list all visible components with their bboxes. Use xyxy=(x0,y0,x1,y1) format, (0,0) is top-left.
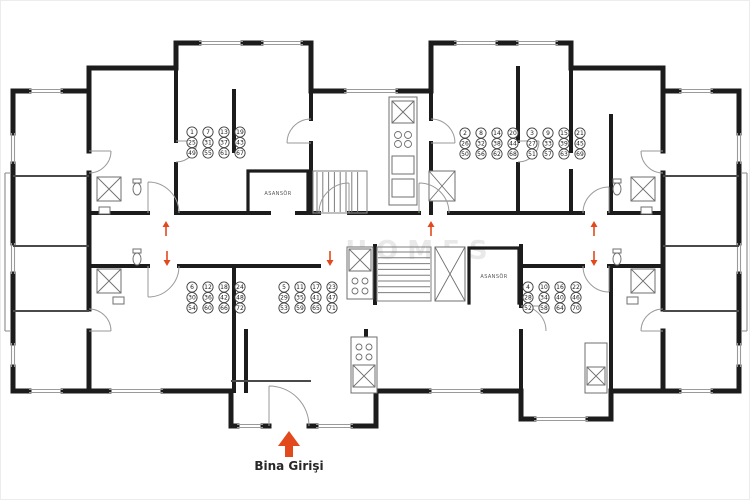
apartment-number: 8 xyxy=(479,130,483,137)
apartment-number: 30 xyxy=(188,295,196,302)
floor-plan-image: HOMES xyxy=(0,0,750,500)
staircase-1 xyxy=(313,171,367,213)
elevator-2-label: ASANSÖR xyxy=(480,273,507,280)
apartment-number: 55 xyxy=(204,150,212,157)
apartment-number: 27 xyxy=(528,141,536,148)
apartment-number: 7 xyxy=(206,129,210,136)
apartment-number: 10 xyxy=(540,284,548,291)
apartment-number: 9 xyxy=(546,130,550,137)
apartment-number: 61 xyxy=(220,150,228,157)
direction-arrow-up xyxy=(163,221,170,236)
apartment-number: 21 xyxy=(576,130,584,137)
apartment-number: 5 xyxy=(282,284,286,291)
apartment-number: 46 xyxy=(572,295,580,302)
apartment-number: 11 xyxy=(296,284,304,291)
apartment-number: 42 xyxy=(220,295,228,302)
apartment-number: 37 xyxy=(220,140,228,147)
floor-plan-canvas: HOMES xyxy=(1,1,750,500)
apartment-number: 51 xyxy=(528,151,536,158)
apartment-number: 3 xyxy=(530,130,534,137)
direction-arrow-down xyxy=(164,251,171,266)
apartment-number: 49 xyxy=(188,150,196,157)
apartment-number: 44 xyxy=(509,141,517,148)
apartment-number: 38 xyxy=(493,141,501,148)
apartment-number: 35 xyxy=(296,295,304,302)
apartment-number: 69 xyxy=(576,151,584,158)
apartment-number: 67 xyxy=(236,150,244,157)
apartment-number: 54 xyxy=(188,305,196,312)
apartment-number: 1 xyxy=(190,129,194,136)
bathroom-fixtures-right xyxy=(613,177,655,304)
apartment-number: 34 xyxy=(540,295,548,302)
apartment-number: 43 xyxy=(236,140,244,147)
apartment-number: 59 xyxy=(296,305,304,312)
apartment-number: 56 xyxy=(477,151,485,158)
apartment-number: 36 xyxy=(204,295,212,302)
apartment-number: 39 xyxy=(560,141,568,148)
apartment-number: 17 xyxy=(312,284,320,291)
apartment-number: 4 xyxy=(526,284,530,291)
apartment-number: 32 xyxy=(477,141,485,148)
apartment-number: 48 xyxy=(236,295,244,302)
apartment-number: 64 xyxy=(556,305,564,312)
apartment-number: 13 xyxy=(220,129,228,136)
unit-6-numbers: 61218243036424854606672 xyxy=(187,282,245,313)
direction-arrow-up xyxy=(428,221,435,236)
apartment-number: 66 xyxy=(220,305,228,312)
apartment-number: 71 xyxy=(328,305,336,312)
apartment-number: 41 xyxy=(312,295,320,302)
apartment-number: 20 xyxy=(509,130,517,137)
apartment-number: 14 xyxy=(493,130,501,137)
apartment-number: 2 xyxy=(463,130,467,137)
direction-arrow-up xyxy=(591,221,598,236)
apartment-number: 22 xyxy=(572,284,580,291)
apartment-number: 6 xyxy=(190,284,194,291)
apartment-number: 70 xyxy=(572,305,580,312)
apartment-number: 18 xyxy=(220,284,228,291)
apartment-number: 24 xyxy=(236,284,244,291)
elevator-1-room: ASANSÖR xyxy=(248,171,308,213)
shaft-2 xyxy=(435,247,465,301)
apartment-number: 53 xyxy=(280,305,288,312)
bathroom-fixtures-left xyxy=(97,177,141,304)
apartment-number: 19 xyxy=(236,129,244,136)
apartment-number: 12 xyxy=(204,284,212,291)
unit-numbers-layer: 1713192531374349556167281420263238445056… xyxy=(187,127,585,313)
apartment-number: 23 xyxy=(328,284,336,291)
unit-4-numbers: 41016222834404652586470 xyxy=(523,282,581,313)
apartment-number: 45 xyxy=(576,141,584,148)
apartment-number: 29 xyxy=(280,295,288,302)
apartment-number: 57 xyxy=(544,151,552,158)
entrance-label: Bina Girişi xyxy=(254,459,323,473)
apartment-number: 58 xyxy=(540,305,548,312)
apartment-number: 52 xyxy=(524,305,532,312)
entrance-arrow-icon xyxy=(278,431,300,457)
apartment-number: 60 xyxy=(204,305,212,312)
direction-arrow-down xyxy=(591,251,598,266)
apartment-number: 15 xyxy=(560,130,568,137)
entrance-marker: Bina Girişi xyxy=(254,431,323,473)
apartment-number: 68 xyxy=(509,151,517,158)
apartment-number: 63 xyxy=(560,151,568,158)
unit-5-numbers: 51117232935414753596571 xyxy=(279,282,337,313)
apartment-number: 47 xyxy=(328,295,336,302)
unit-3-numbers: 3915212733394551576369 xyxy=(527,128,585,159)
apartment-number: 16 xyxy=(556,284,564,291)
elevator-1-label: ASANSÖR xyxy=(264,190,291,197)
unit-2-numbers: 2814202632384450566268 xyxy=(460,128,518,159)
apartment-number: 40 xyxy=(556,295,564,302)
apartment-number: 31 xyxy=(204,140,212,147)
apartment-number: 33 xyxy=(544,141,552,148)
unit-1-numbers: 1713192531374349556167 xyxy=(187,127,245,158)
apartment-number: 26 xyxy=(461,141,469,148)
apartment-number: 25 xyxy=(188,140,196,147)
apartment-number: 62 xyxy=(493,151,501,158)
apartment-number: 65 xyxy=(312,305,320,312)
apartment-number: 72 xyxy=(236,305,244,312)
apartment-number: 28 xyxy=(524,295,532,302)
direction-arrow-down xyxy=(327,251,334,266)
apartment-number: 50 xyxy=(461,151,469,158)
